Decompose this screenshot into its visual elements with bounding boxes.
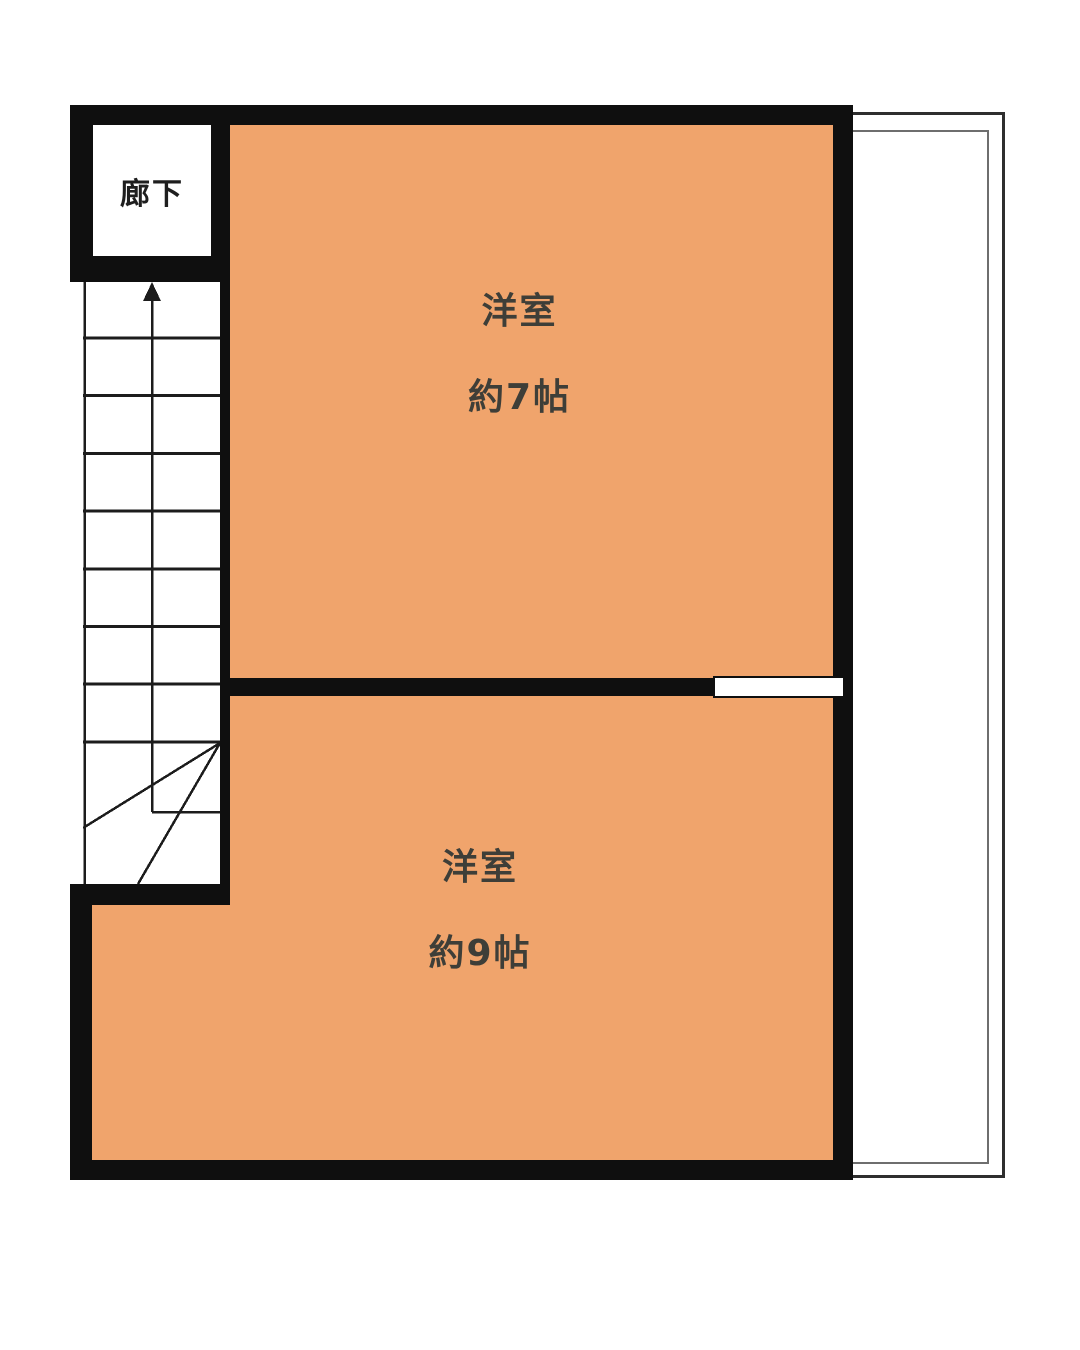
wall-left-lower: [70, 884, 92, 1180]
wall-room-divider: [220, 678, 713, 696]
room-name: 洋室: [442, 850, 518, 886]
balcony-inner-line: [853, 130, 989, 1164]
wall-top: [70, 105, 853, 125]
wall-hallway-right: [211, 105, 230, 282]
room-label-western-9: 洋室 約9帖: [120, 850, 840, 972]
wall-bottom: [70, 1160, 853, 1180]
room-size: 約7帖: [468, 380, 571, 416]
wall-right: [833, 105, 853, 1180]
hallway-label: 廊下: [93, 125, 211, 256]
staircase: [83, 282, 220, 884]
room-name: 洋室: [481, 294, 557, 330]
wall-hallway-bottom: [70, 256, 230, 282]
room-label-western-7: 洋室 約7帖: [218, 294, 821, 416]
up-arrow-icon: [143, 282, 161, 301]
sliding-door-opening: [713, 676, 845, 698]
floor-plan: 廊下 洋室 約7帖 洋室 約9帖: [0, 0, 1080, 1350]
room-size: 約9帖: [428, 936, 531, 972]
